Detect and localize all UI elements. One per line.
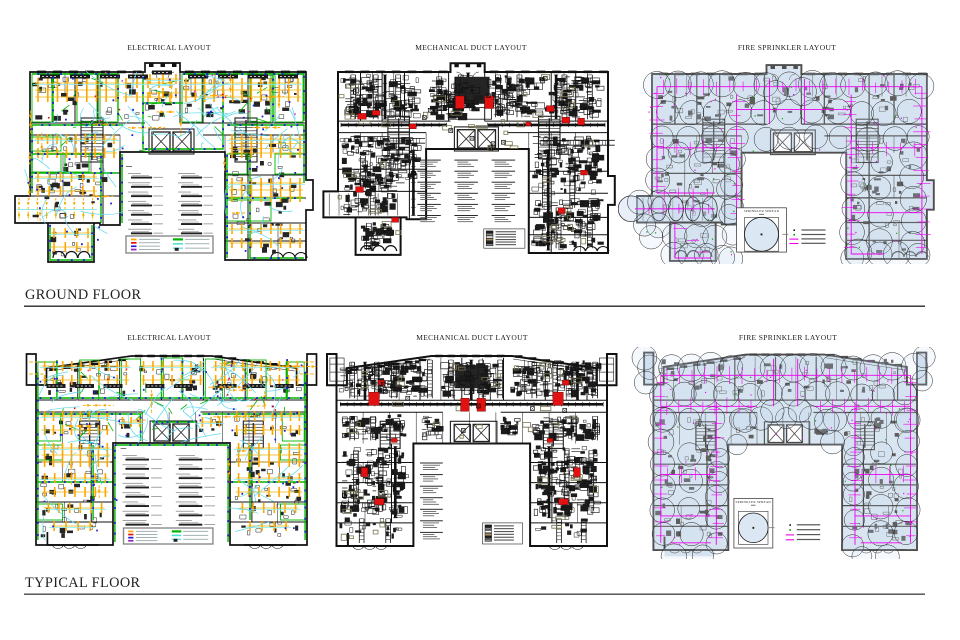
- svg-text:MECHANICAL DUCT LAYOUT: MECHANICAL DUCT LAYOUT: [416, 333, 528, 342]
- svg-text:GROUND FLOOR: GROUND FLOOR: [25, 287, 141, 303]
- svg-text:FIRE SPRINKLER LAYOUT: FIRE SPRINKLER LAYOUT: [739, 333, 837, 342]
- svg-text:MECHANICAL DUCT LAYOUT: MECHANICAL DUCT LAYOUT: [415, 43, 527, 52]
- svg-text:TYPICAL FLOOR: TYPICAL FLOOR: [25, 575, 141, 591]
- svg-text:ELECTRICAL LAYOUT: ELECTRICAL LAYOUT: [127, 333, 211, 342]
- svg-text:ELECTRICAL LAYOUT: ELECTRICAL LAYOUT: [127, 43, 211, 52]
- svg-text:FIRE SPRINKLER LAYOUT: FIRE SPRINKLER LAYOUT: [738, 43, 836, 52]
- svg-text:SPRINKLER SPREAD: SPRINKLER SPREAD: [736, 500, 772, 504]
- svg-text:SPRINKLER SPREAD: SPRINKLER SPREAD: [744, 209, 780, 213]
